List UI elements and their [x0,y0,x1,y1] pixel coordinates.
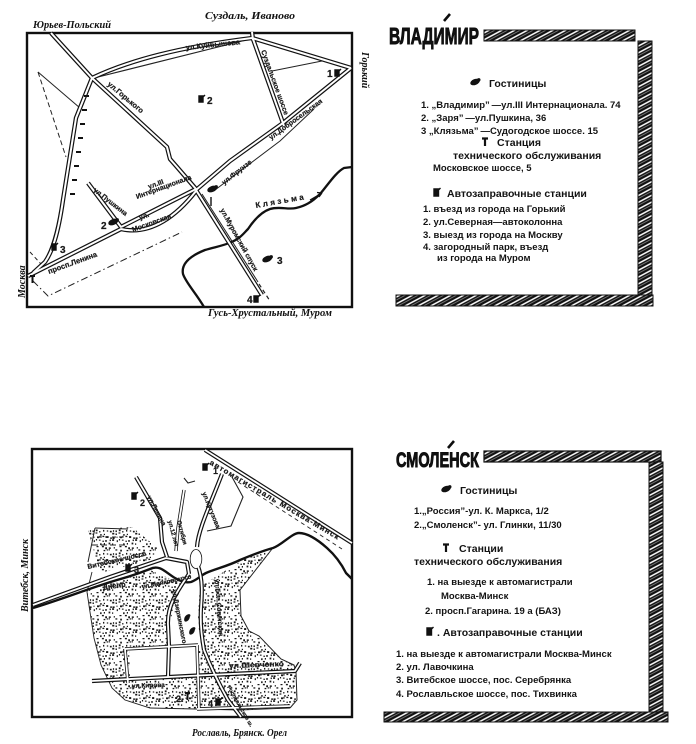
svg-text:Суздаль, Иваново: Суздаль, Иваново [205,10,296,22]
svg-text:1. на выезде к автомагистра: 1. на выезде к автомагистрали Москва-Мин… [396,649,612,660]
svg-text:2. ул. Лавочкина: 2. ул. Лавочкина [396,662,474,673]
svg-text:Москва: Москва [17,265,28,299]
svg-text:. Автозаправочные станции: . Автозаправочные станции [437,627,583,639]
svg-text:ул.Муромский спуск: ул.Муромский спуск [218,207,259,273]
svg-text:3. Витебское шоссе, пос. Сереб: 3. Витебское шоссе, пос. Серебрянка [396,675,572,686]
svg-text:ул.Ленина: ул.Ленина [145,495,167,528]
svg-text:1: 1 [327,69,333,80]
svg-text:1. на выезде к автомагистрал: 1. на выезде к автомагистрали [427,577,573,588]
svg-text:2. ул.Северная—автоколонна: 2. ул.Северная—автоколонна [423,217,563,228]
svg-text:ул.Кирова: ул.Кирова [132,682,166,690]
svg-text:Юрьев-Польский: Юрьев-Польский [32,19,111,31]
svg-text:Станции: Станции [459,543,503,555]
svg-text:автомагистраль Москва-Минск: автомагистраль Москва-Минск [208,458,342,542]
svg-text:3: 3 [277,256,283,267]
svg-text:4. Рославльское шоссе, пос. Ти: 4. Рославльское шоссе, пос. Тихвинка [396,689,578,700]
svg-text:1. „Владимир” —ул.III Интерн: 1. „Владимир” —ул.III Интернационала. 74 [421,100,621,111]
svg-text:2: 2 [176,694,181,704]
svg-text:Рославль, Брянск. Орел: Рославль, Брянск. Орел [192,728,288,739]
svg-text:ВЛАДИМИР: ВЛАДИМИР [389,23,479,49]
svg-text:ул.Куйбышева: ул.Куйбышева [185,37,241,52]
svg-text:3: 3 [134,565,139,575]
svg-text:Автозаправочные станции: Автозаправочные станции [447,188,587,200]
svg-text:технического обслуживания: технического обслуживания [453,150,601,162]
svg-text:4: 4 [208,699,213,709]
svg-text:Москва-Минск: Москва-Минск [441,591,509,602]
svg-text:Суздальское шоссе: Суздальское шоссе [259,49,289,116]
svg-text:2. просп.Гагарина. 19 а (БАЗ: 2. просп.Гагарина. 19 а (БАЗ) [425,606,561,617]
svg-text:Станция: Станция [497,137,541,149]
svg-text:2: 2 [140,498,145,508]
svg-text:Горький: Горький [359,51,370,89]
svg-text:2.„Смоленск”- ул. Глинки, 11/3: 2.„Смоленск”- ул. Глинки, 11/30 [414,520,562,531]
svg-text:СМОЛЕНСК: СМОЛЕНСК [396,449,479,472]
svg-text:3 „Клязьма” —Судогодское шо: 3 „Клязьма” —Судогодское шоссе. 15 [421,126,599,137]
svg-text:Гостиницы: Гостиницы [460,485,517,497]
svg-text:1.„Россия”-ул. К. Маркса, 1/2: 1.„Россия”-ул. К. Маркса, 1/2 [414,506,549,517]
svg-text:Московское шоссе, 5: Московское шоссе, 5 [433,163,532,174]
svg-text:1. въезд из города на Горький: 1. въезд из города на Горький [423,204,566,215]
svg-text:4. загородный парк, въезд: 4. загородный парк, въезд [423,242,548,253]
svg-text:2: 2 [207,96,213,107]
svg-text:из города на Муром: из города на Муром [437,253,531,264]
svg-text:2: 2 [101,221,107,232]
svg-text:2. „Заря” —ул.Пушкина, 36: 2. „Заря” —ул.Пушкина, 36 [421,113,546,124]
svg-text:3: 3 [60,245,66,256]
svg-text:Гостиницы: Гостиницы [489,78,546,90]
svg-text:Гусь-Хрустальный, Муром: Гусь-Хрустальный, Муром [207,307,332,319]
svg-text:технического обслуживания: технического обслуживания [414,556,562,568]
svg-text:4: 4 [247,295,253,306]
svg-text:Витебск, Минск: Витебск, Минск [20,538,31,613]
svg-text:3. выезд из города на Москву: 3. выезд из города на Москву [423,230,563,241]
svg-text:1: 1 [213,466,218,476]
